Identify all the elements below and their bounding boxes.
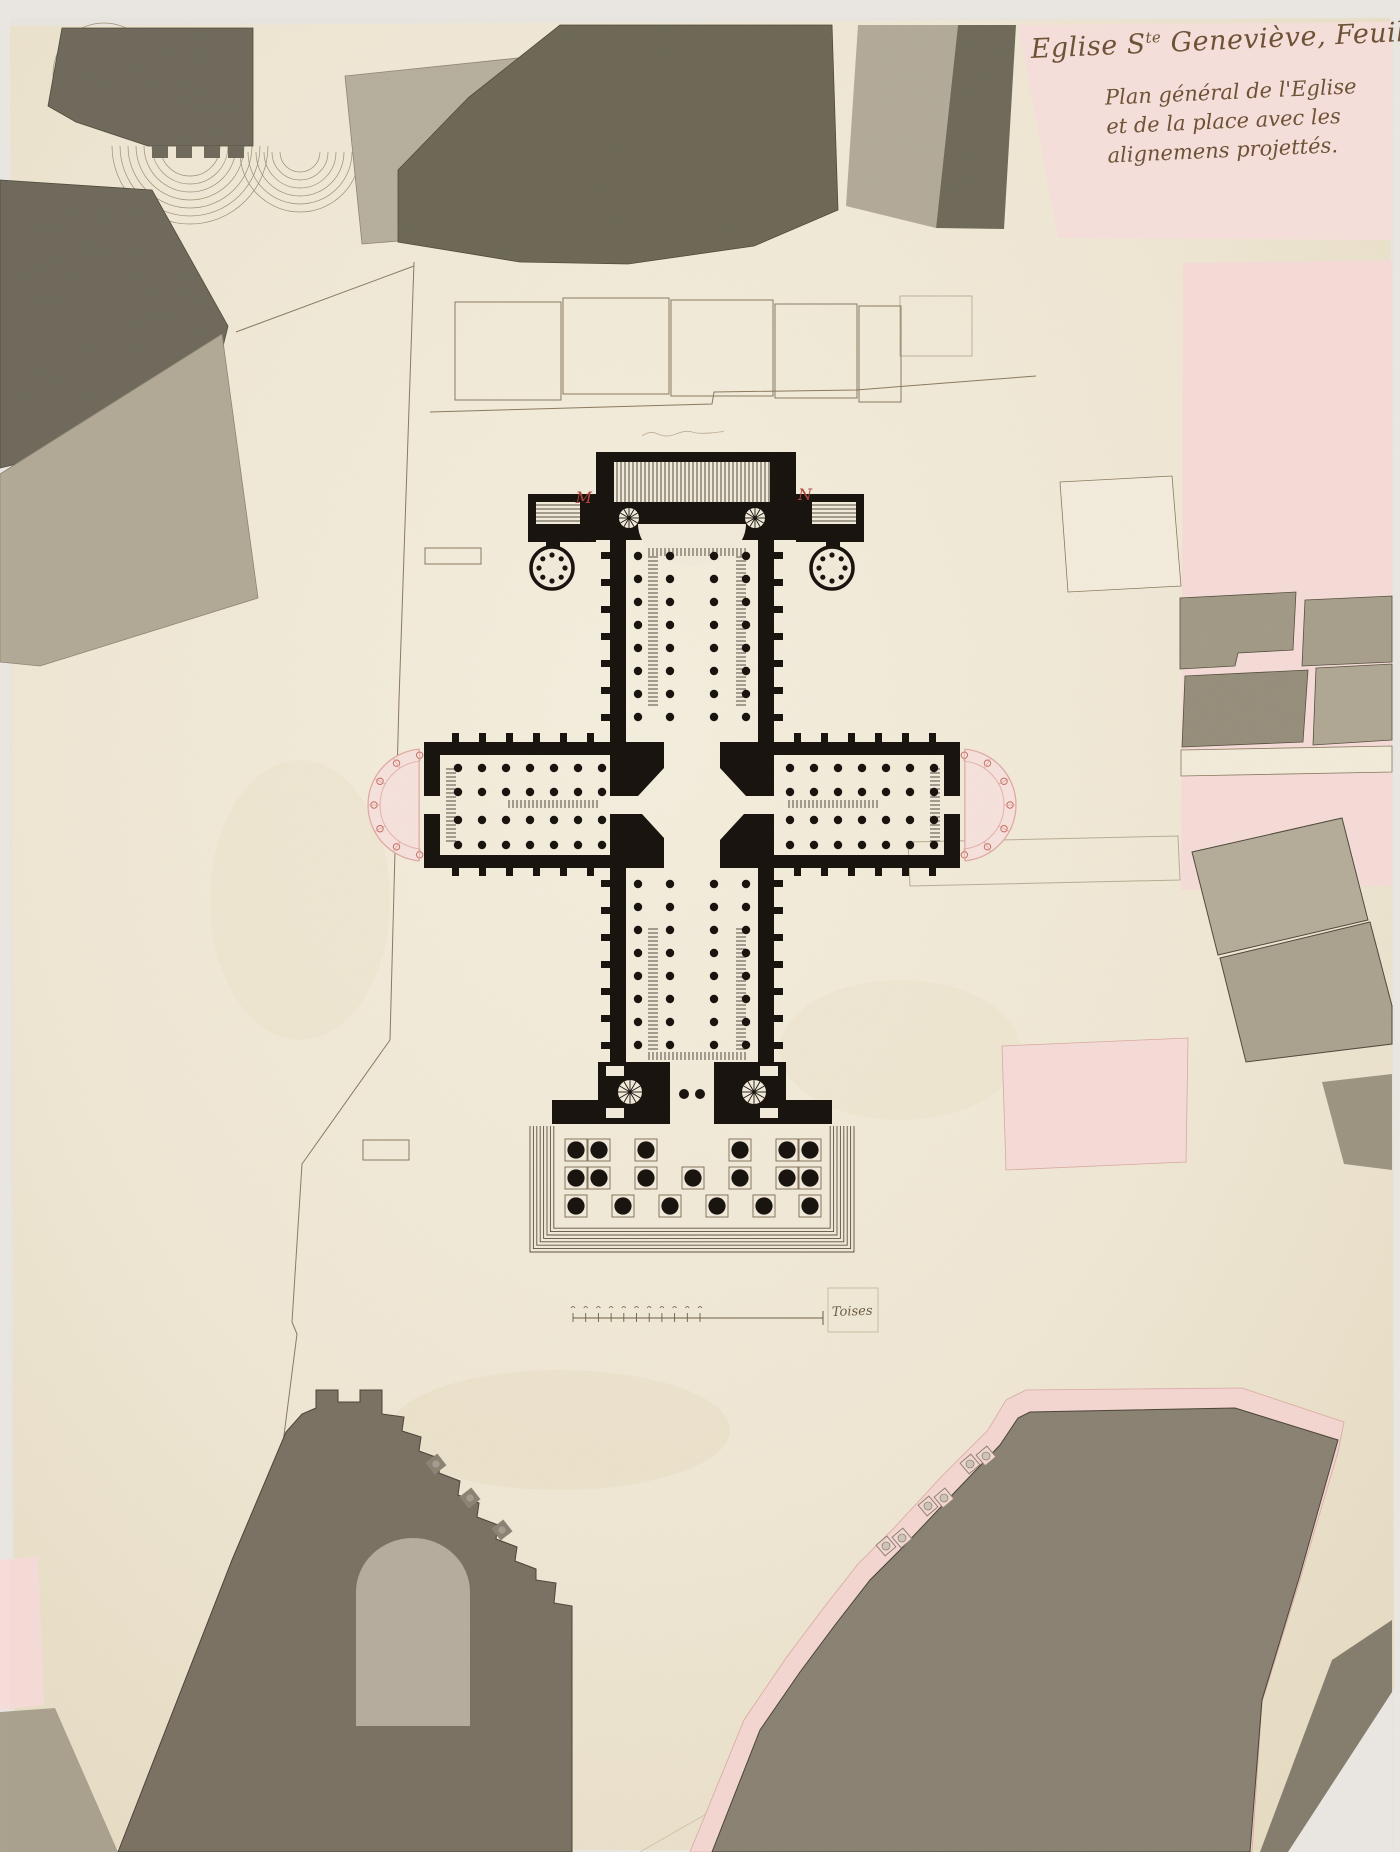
site-plan-canvas: Toises M N xyxy=(0,0,1400,1852)
scanned-architectural-drawing: Toises M N Eglise Ste Geneviève, Feuille… xyxy=(0,0,1400,1852)
paper-grain-texture xyxy=(10,18,1394,1850)
